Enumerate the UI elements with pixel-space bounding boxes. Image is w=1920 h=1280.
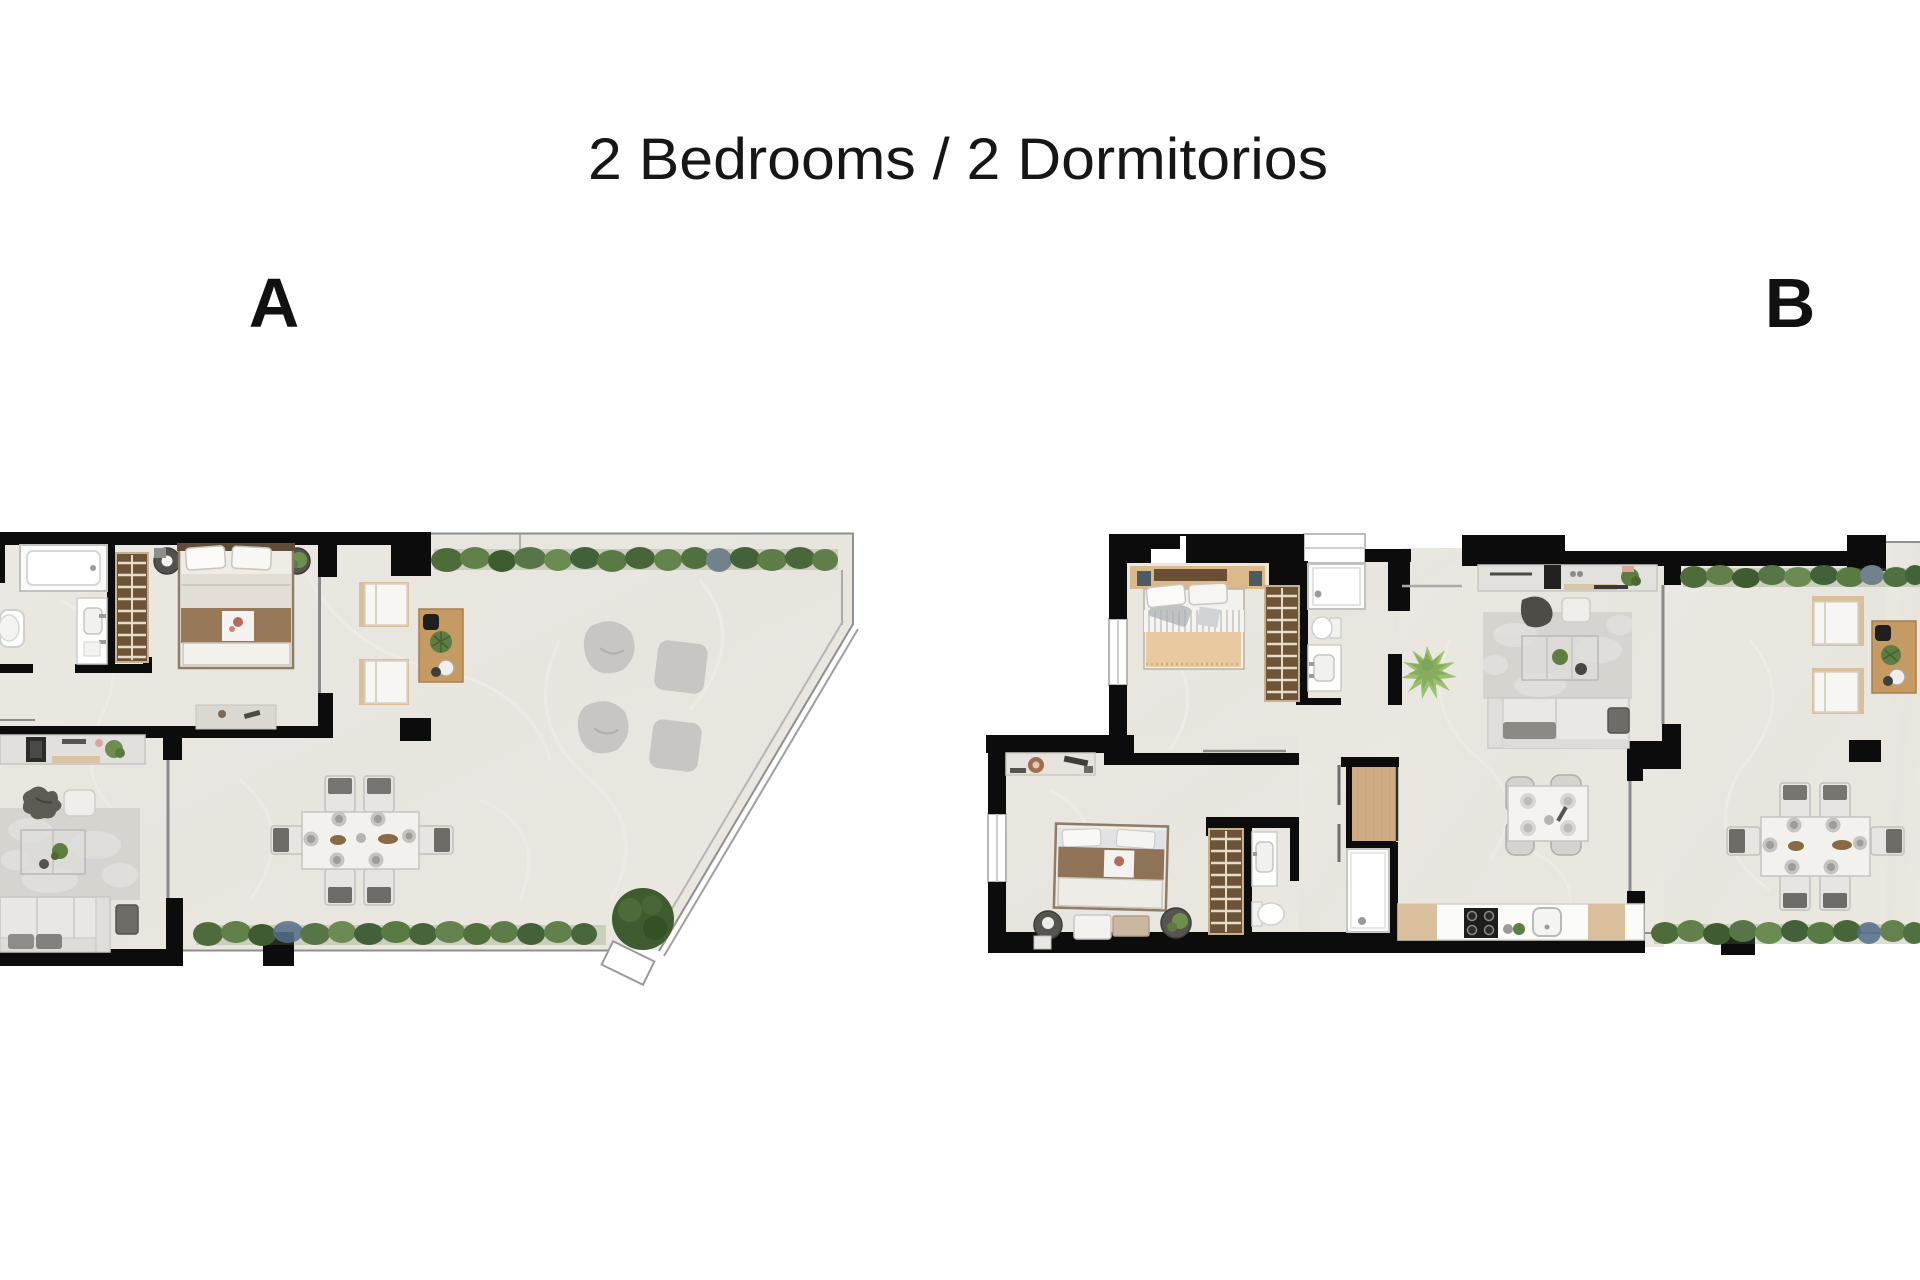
svg-text:2 Bedrooms / 2 Dormitorios: 2 Bedrooms / 2 Dormitorios: [588, 127, 1328, 192]
svg-text:A: A: [249, 264, 300, 342]
svg-text:B: B: [1765, 264, 1816, 342]
